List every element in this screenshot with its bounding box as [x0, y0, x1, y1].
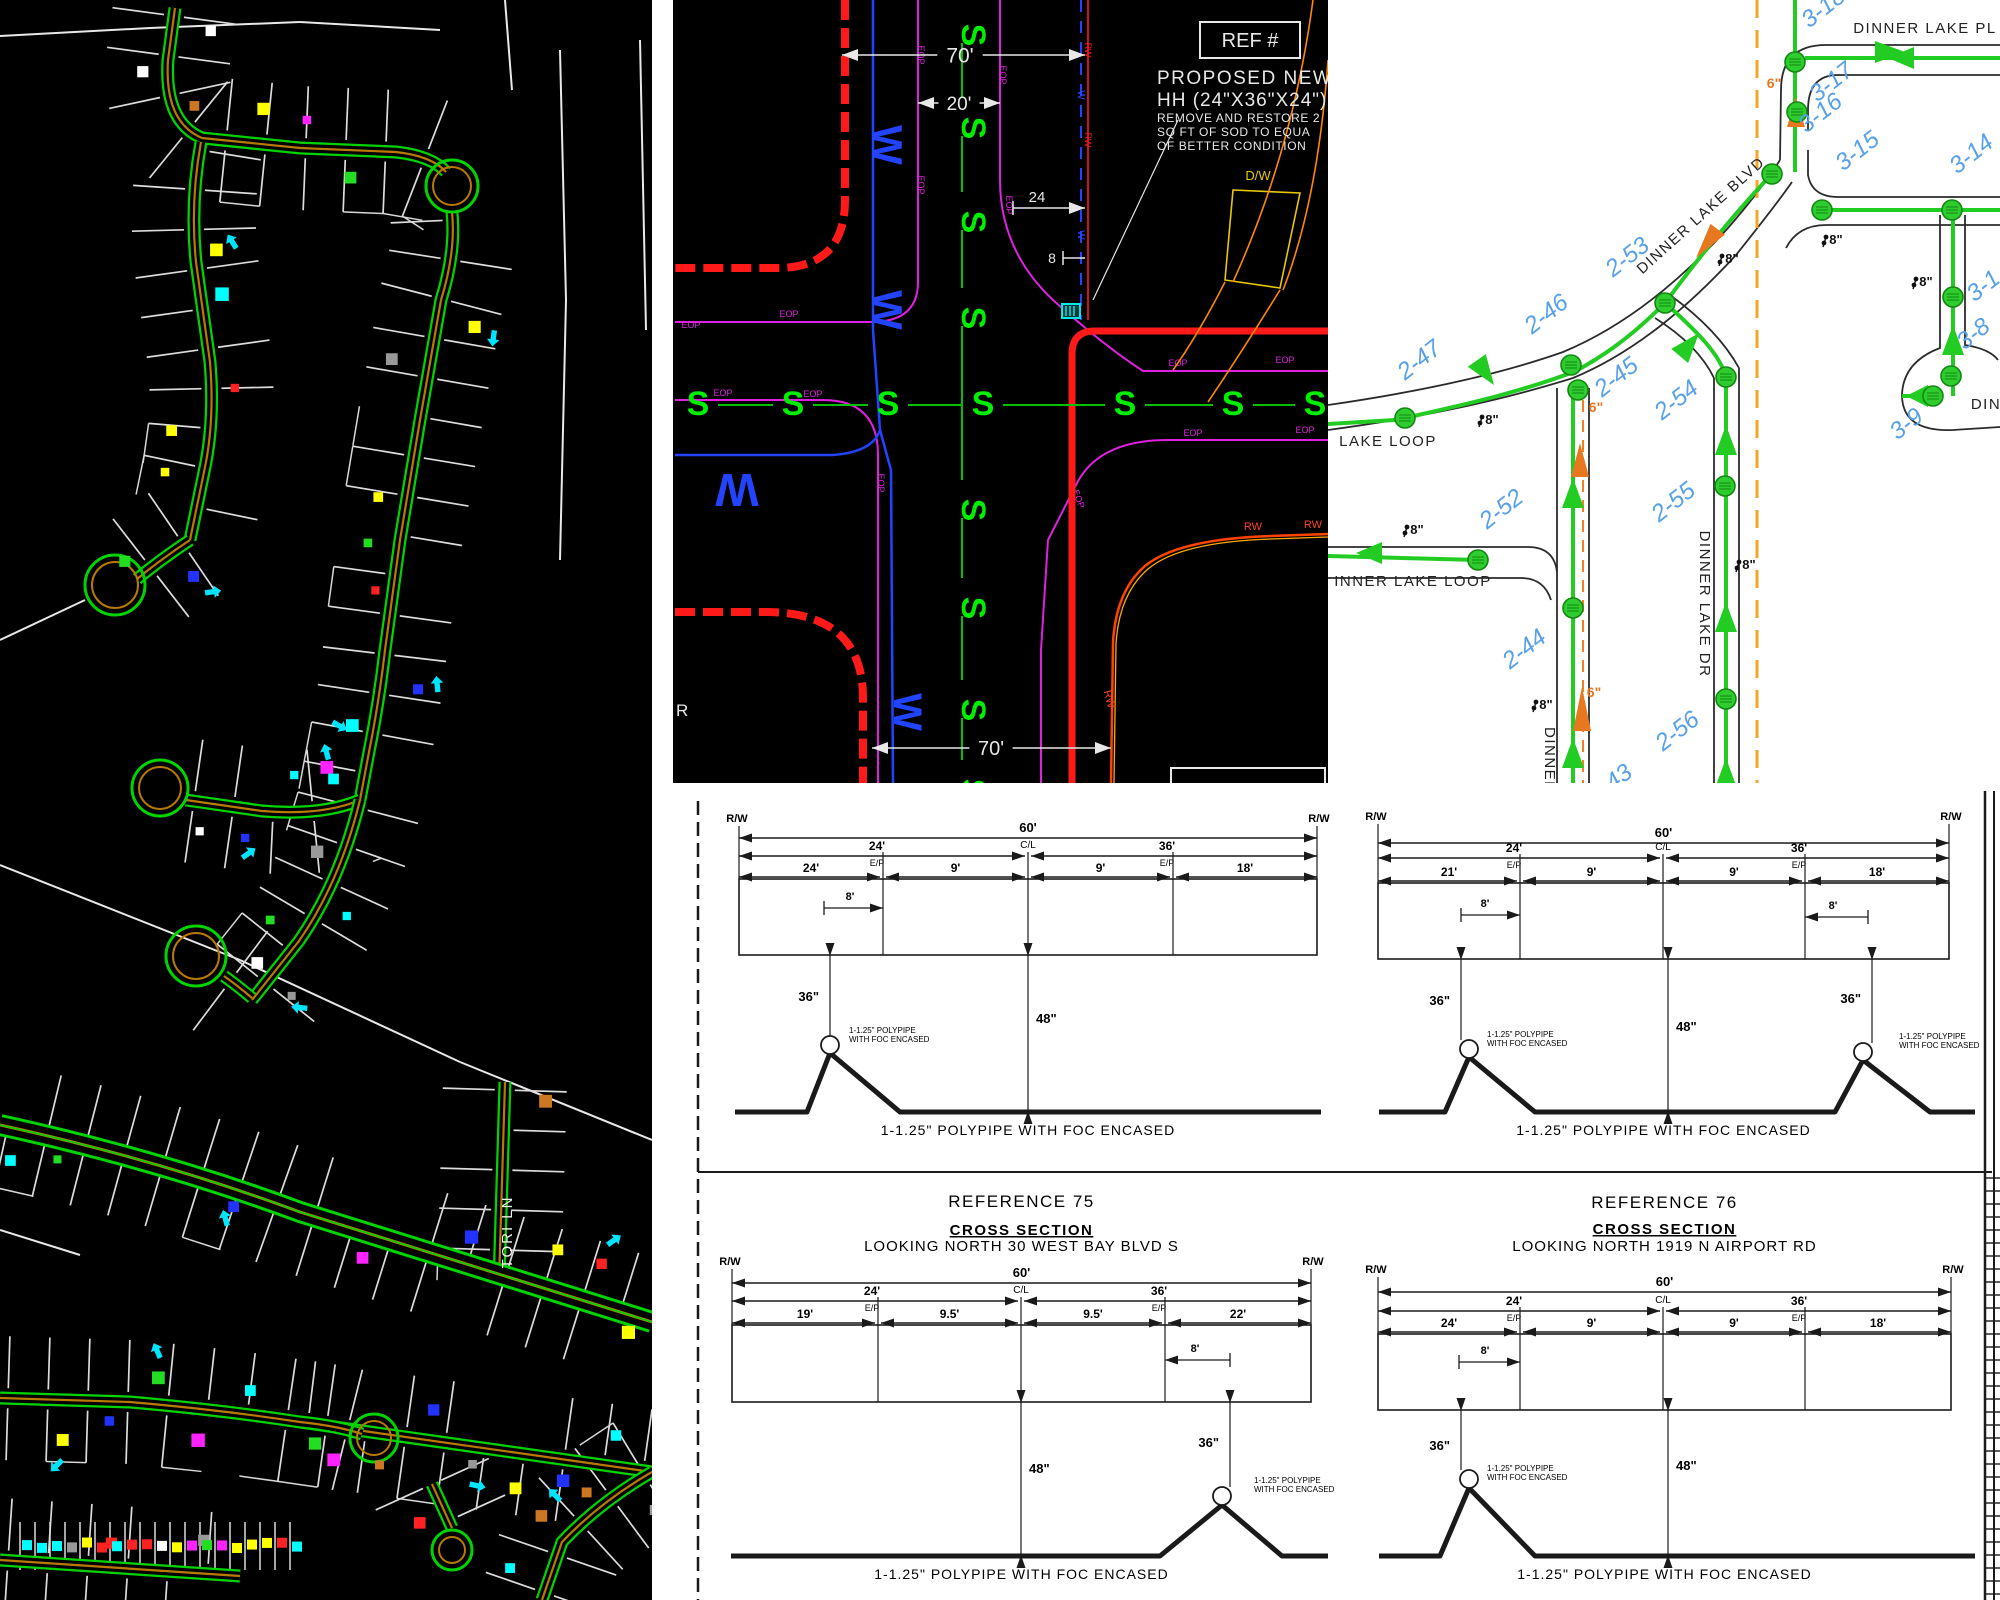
water-glyph: W [864, 290, 911, 330]
duct-size-8in: 8" [1410, 522, 1423, 537]
fiber-route-map-canvas: 6"6"6"8"8"8"8"8"8"8"DINNER LAKE PLDINNER… [1328, 0, 2000, 783]
lane-width: 22' [1230, 1307, 1246, 1321]
rw-label: R/W [1942, 1264, 1964, 1276]
pipe-note: 1-1.25" POLYPIPE WITH FOC ENCASED [1517, 1566, 1811, 1582]
dim-36ft: 36' [1159, 839, 1175, 853]
cross-section-bottom-right: REFERENCE 76CROSS SECTIONLOOKING NORTH 1… [1365, 1193, 1975, 1582]
water-glyph: W [1075, 230, 1086, 240]
dim-8ft: 8' [1191, 1343, 1200, 1355]
depth-36in: 36" [1198, 1435, 1219, 1450]
dim-24ft: 24' [864, 1284, 880, 1298]
parcel-linework [0, 0, 652, 1255]
cs-subtitle: CROSS SECTION [1593, 1221, 1737, 1238]
pipe-callout-line1: 1-1.25" POLYPIPE [1487, 1464, 1554, 1473]
ep-label: E/P [865, 1303, 880, 1313]
handhole-id: 3-9 [1884, 403, 1928, 446]
lane-width: 18' [1869, 865, 1885, 879]
depth-48in: 48" [1676, 1019, 1697, 1034]
callout-line-1: PROPOSED NEW F [1157, 68, 1328, 89]
handhole-id: 2-52 [1473, 484, 1528, 535]
street-name: DINNER LAKE PL [1853, 20, 1997, 37]
dim-70ft-bottom-value: 70' [978, 738, 1004, 760]
lane-width: 9.5' [1083, 1307, 1103, 1321]
ref-number-label: REF # [1222, 30, 1280, 52]
eop-label: EOP [1275, 355, 1294, 365]
ep-label: E/P [870, 858, 885, 868]
pipe-callout-line2: WITH FOC ENCASED [1487, 1039, 1568, 1048]
eop-label: EOP [1295, 425, 1314, 435]
rw-label: RW [1244, 521, 1263, 533]
dim-60ft: 60' [1655, 825, 1673, 840]
dim-24-value: 24 [1029, 189, 1046, 206]
water-glyph: W [1075, 90, 1086, 100]
eop-label: EOP [916, 175, 926, 194]
dim-8ft: 8' [1829, 900, 1838, 912]
dim-70ft-top-value: 70' [946, 45, 973, 68]
handhole-id: 2-46 [1518, 288, 1574, 340]
dim-24: 24 [1013, 189, 1085, 215]
sewer-glyph: S [954, 597, 992, 620]
streets [0, 8, 652, 1600]
cs-reference-title: REFERENCE 76 [1591, 1193, 1737, 1212]
cs-subtitle: CROSS SECTION [950, 1222, 1094, 1239]
fiber-route-map-panel: 6"6"6"8"8"8"8"8"8"8"DINNER LAKE PLDINNER… [1328, 0, 2000, 783]
handhole-id: 3-15 [1830, 125, 1885, 176]
handhole-id: 2-47 [1391, 334, 1448, 386]
eop-label: EOP [876, 473, 886, 492]
sewer-glyph: S [954, 117, 992, 140]
ep-label: E/P [1507, 1313, 1522, 1323]
pipe-note: 1-1.25" POLYPIPE WITH FOC ENCASED [874, 1566, 1168, 1582]
depth-36in: 36" [798, 989, 819, 1004]
depth-48in: 48" [1036, 1011, 1057, 1026]
water-glyph: W [885, 693, 929, 731]
lane-width: 18' [1870, 1316, 1886, 1330]
dim-24ft: 24' [1506, 1294, 1522, 1308]
callout-line-2: HH (24"X36"X24") [1157, 90, 1327, 111]
sewer-glyph: S [954, 499, 992, 522]
cs-reference-title: REFERENCE 75 [948, 1192, 1094, 1211]
duct-size-8in: 8" [1725, 251, 1738, 266]
duct-size-6in: 6" [1767, 75, 1781, 91]
rw-label: R/W [1302, 1256, 1324, 1268]
ep-label: E/P [1507, 860, 1522, 870]
rw-label: R/W [719, 1256, 741, 1268]
parcel-map-canvas: TORI LN [0, 0, 652, 1600]
street-name: DIN [1971, 396, 2000, 413]
dim-70ft-top: 70' [842, 45, 1085, 68]
lane-width: 24' [1441, 1316, 1457, 1330]
lane-width: 9' [1729, 1316, 1739, 1330]
dim-8-value: 8 [1048, 250, 1056, 266]
cl-label: C/L [1655, 1295, 1671, 1306]
pipe-callout-line2: WITH FOC ENCASED [1254, 1485, 1335, 1494]
duct-size-8in: 8" [1485, 412, 1498, 427]
eop-label: EOP [779, 309, 798, 319]
handhole-id: 2-54 [1648, 375, 1703, 426]
duct-size-6in: 6" [1587, 684, 1601, 700]
sewer-glyph: S [954, 211, 992, 234]
sewer-glyph: S [954, 24, 992, 47]
pipe-note: 1-1.25" POLYPIPE WITH FOC ENCASED [1516, 1122, 1810, 1138]
dim-36ft: 36' [1791, 841, 1807, 855]
rw-label: RW [1304, 519, 1323, 531]
callout-line-5: OF BETTER CONDITION [1157, 139, 1306, 153]
lane-width: 9.5' [940, 1307, 960, 1321]
lane-width: 9' [1096, 861, 1106, 875]
dim-60ft: 60' [1656, 1274, 1674, 1289]
eop-label: EOP [1183, 428, 1202, 438]
ep-label: E/P [1152, 1303, 1167, 1313]
rw-label: R/W [726, 813, 748, 825]
depth-36in: 36" [1429, 993, 1450, 1008]
eop-label: EOP [803, 389, 822, 399]
water-glyph: W [715, 464, 759, 516]
pipe-callout-line2: WITH FOC ENCASED [1899, 1041, 1980, 1050]
sewer-glyph: S [954, 699, 992, 722]
dim-60ft: 60' [1013, 1265, 1031, 1280]
handhole-id-labels: 2-472-462-532-452-542-522-552-442-562-43… [1391, 0, 2000, 783]
duct-size-8in: 8" [1742, 557, 1755, 572]
rw-label: R/W [1365, 811, 1387, 823]
pipe-callout-line1: 1-1.25" POLYPIPE [1254, 1476, 1321, 1485]
dim-36ft: 36' [1791, 1294, 1807, 1308]
dim-60ft: 60' [1019, 820, 1037, 835]
proposed-handhole-marker [1062, 304, 1080, 318]
callout-block: REF #PROPOSED NEW FHH (24"X36"X24")REMOV… [1157, 22, 1328, 153]
cl-label: C/L [1020, 840, 1036, 851]
pipe-callout-line1: 1-1.25" POLYPIPE [849, 1026, 916, 1035]
dim-24ft: 24' [1506, 841, 1522, 855]
cad-plan-composite: TORI LN EOPEOPEOPEOPEOPEOPEOPEOPEOPEOPEO… [0, 0, 2000, 1600]
duct-size-8in: 8" [1539, 697, 1552, 712]
lane-width: 18' [1237, 861, 1253, 875]
dim-8ft: 8' [1481, 1345, 1490, 1357]
pipe-callout-line2: WITH FOC ENCASED [849, 1035, 930, 1044]
lane-width: 9' [1587, 865, 1597, 879]
lane-width: 9' [951, 861, 961, 875]
depth-48in: 48" [1676, 1458, 1697, 1473]
eop-label: EOP [998, 65, 1008, 84]
rw-label: R/W [1308, 813, 1330, 825]
handhole-id: 3-1 [1961, 265, 2000, 308]
cl-label: C/L [1655, 842, 1671, 853]
lane-width: 19' [797, 1307, 813, 1321]
cs-looking-label: LOOKING NORTH 30 WEST BAY BLVD S [864, 1238, 1179, 1255]
depth-48in: 48" [1029, 1461, 1050, 1476]
rw-label: RW [1083, 133, 1093, 148]
sewer-glyph: S [1114, 385, 1137, 423]
dim-36ft: 36' [1151, 1284, 1167, 1298]
intersection-plan-canvas: EOPEOPEOPEOPEOPEOPEOPEOPEOPEOPEOPEOPEOPE… [673, 0, 1328, 783]
clipped-street-name: R [676, 701, 688, 720]
cross-sections-panel: R/WR/W60'24'C/L36'E/PE/P24'9'9'18'8'36"1… [673, 783, 2000, 1600]
duct-size-8in: 8" [1919, 274, 1932, 289]
callout-line-4: SQ FT OF SOD TO EQUA [1157, 125, 1310, 139]
sewer-glyph: S [877, 385, 900, 423]
sewer-glyph: S [954, 307, 992, 330]
handhole-id: 2-56 [1649, 705, 1705, 757]
ep-label: E/P [1792, 860, 1807, 870]
callout-line-3: REMOVE AND RESTORE 2 [1157, 111, 1320, 125]
street-name: DINNER LAKE DR [1696, 531, 1713, 678]
depth-36in: 36" [1429, 1438, 1450, 1453]
eop-label: EOP [713, 388, 732, 398]
ep-label: E/P [1792, 1313, 1807, 1323]
street-name: LAKE LOOP [1339, 433, 1437, 450]
cross-section-top-right: R/WR/W60'24'C/L36'E/PE/P21'9'9'18'8'8'36… [1365, 811, 1979, 1138]
dim-8ft: 8' [846, 891, 855, 903]
dw-label: D/W [1245, 168, 1271, 183]
pipe-callout-line1: 1-1.25" POLYPIPE [1487, 1030, 1554, 1039]
handhole-id: 2-55 [1645, 476, 1701, 528]
dim-8ft: 8' [1481, 898, 1490, 910]
sewer-glyph: S [782, 385, 805, 423]
handhole-id: 3-14 [1944, 129, 1998, 180]
pipe-callout-line2: WITH FOC ENCASED [1487, 1473, 1568, 1482]
lane-width: 9' [1729, 865, 1739, 879]
lane-width: 9' [1587, 1316, 1597, 1330]
intersection-plan-panel: EOPEOPEOPEOPEOPEOPEOPEOPEOPEOPEOPEOPEOPE… [673, 0, 1328, 783]
pipe-note: 1-1.25" POLYPIPE WITH FOC ENCASED [881, 1122, 1175, 1138]
duct-size-8in: 8" [1829, 232, 1842, 247]
dim-24ft: 24' [869, 839, 885, 853]
handhole-id: 3-18 [1796, 0, 1851, 34]
water-glyph: W [864, 125, 911, 165]
depth-36in: 36" [1840, 991, 1861, 1006]
lane-width: 24' [803, 861, 819, 875]
street-name-tori-ln: TORI LN [499, 1196, 516, 1269]
street-name: DINNER L [1541, 727, 1558, 783]
sewer-glyph: S [1222, 385, 1245, 423]
pipe-callout-line1: 1-1.25" POLYPIPE [1899, 1032, 1966, 1041]
cs-looking-label: LOOKING NORTH 1919 N AIRPORT RD [1512, 1238, 1816, 1255]
sewer-glyph: S [1304, 385, 1327, 423]
cl-label: C/L [1013, 1285, 1029, 1296]
cross-section-top-left: R/WR/W60'24'C/L36'E/PE/P24'9'9'18'8'36"1… [726, 813, 1330, 1138]
eop-label: EOP [681, 320, 700, 330]
parcel-map-panel: TORI LN [0, 0, 652, 1600]
cross-section-bottom-left: REFERENCE 75CROSS SECTIONLOOKING NORTH 3… [719, 1192, 1334, 1582]
handhole-id: 3-16 [1793, 87, 1848, 138]
dim-20ft: 20' [918, 94, 1000, 115]
rw-label: R/W [1365, 1264, 1387, 1276]
handhole-id: 2-43 [1582, 758, 1638, 783]
sewer-glyph: S [687, 385, 710, 423]
duct-size-6in: 6" [1589, 399, 1603, 415]
street-name: INNER LAKE LOOP [1334, 573, 1492, 590]
lane-width: 21' [1441, 865, 1457, 879]
dim-8: 8 [1048, 250, 1085, 266]
sewer-glyph: S [972, 385, 995, 423]
cross-sections-canvas: R/WR/W60'24'C/L36'E/PE/P24'9'9'18'8'36"1… [673, 783, 2000, 1600]
handhole-id: 2-44 [1496, 624, 1551, 675]
dim-20ft-value: 20' [947, 94, 972, 115]
ep-label: E/P [1160, 858, 1175, 868]
rw-label: R/W [1940, 811, 1962, 823]
